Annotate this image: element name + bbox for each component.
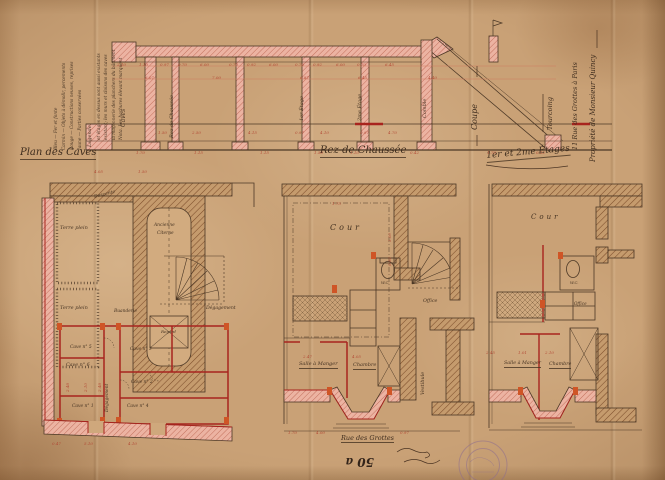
chambre-etages: Chambre	[549, 363, 571, 369]
dim: 6.07	[145, 76, 154, 80]
office-rdc: Office	[423, 300, 437, 305]
dim: 1.70	[487, 151, 496, 155]
address-line: 11 Rue des Grottes à Paris	[572, 62, 579, 150]
dim: 6.87	[300, 76, 309, 80]
level-2me: 2me Étage	[358, 94, 363, 121]
dim: 0.12	[536, 151, 545, 155]
dim: 7.00	[212, 76, 221, 80]
dim: 2.10	[117, 63, 126, 67]
cave-3: Cave n° 3	[130, 348, 152, 352]
terre-plein-1: Terre plein	[60, 226, 88, 231]
dim: 0.97	[295, 131, 304, 135]
level-comble: Comble	[423, 99, 428, 118]
dim: 4.05	[352, 355, 361, 359]
nota-line-4: et étages en dessus sont aussi existants	[98, 53, 102, 140]
office-etages: Office	[574, 302, 587, 306]
rue-label: Rue des Grottes	[341, 435, 394, 443]
dim: 0.92	[388, 257, 392, 266]
descente-label: Descente	[94, 191, 116, 201]
legende-rouge: Rouge — Constructions neuves, reprises	[71, 62, 75, 150]
dim: 0.70	[357, 63, 366, 67]
legende-heading: Légende:	[88, 123, 93, 147]
dim: 2.48	[98, 383, 102, 392]
dim: 0.70	[229, 63, 238, 67]
dim: 2.10	[84, 383, 88, 392]
dim: 1.15	[194, 151, 203, 155]
dim: 0.42	[410, 151, 419, 155]
dim: 0.92	[247, 63, 256, 67]
city-line: Tourcoing	[547, 97, 554, 130]
dim: 4.70	[388, 131, 397, 135]
dim: 3.00	[388, 233, 392, 242]
dim: 4.00	[316, 431, 325, 435]
nota-line-1: Nota. Les hachures élevant marquent	[120, 58, 124, 140]
legende-bleu: Bleu — Fer et fonte	[55, 108, 59, 150]
dim: 0.97	[160, 63, 169, 67]
degagement-stair-label: Dégagement	[206, 307, 236, 312]
archive-number: 50 a	[345, 456, 374, 468]
legende-jaune: Jaune — Parties conservées	[79, 90, 83, 150]
dim: 2.45	[486, 351, 495, 355]
wc-rdc: W.C.	[381, 281, 389, 285]
dim: 6.45	[358, 76, 367, 80]
etages-title: 1er et 2me Étages	[486, 145, 570, 163]
dim: 1.50	[158, 131, 167, 135]
owner-line: Propriété de Monsieur Quincy	[590, 55, 597, 162]
coupe-title: Coupe	[471, 104, 479, 130]
wc-etages: W.C.	[570, 281, 578, 285]
regard-label: Regard	[161, 330, 176, 334]
dim: 1.70	[288, 431, 297, 435]
dim: 2.47	[303, 355, 312, 359]
terre-plein-2: Terre plein	[60, 306, 88, 311]
level-1er: 1er Étage	[300, 96, 305, 121]
dim: 6.45	[385, 63, 394, 67]
dim: 0.70	[295, 63, 304, 67]
chambre-rdc: Chambre	[353, 363, 376, 370]
labels-layer: Plan des CavesRez-de-Chaussée1er et 2me …	[0, 0, 665, 480]
dim: 1.10	[350, 151, 359, 155]
ancienne-label: Ancienne	[154, 224, 175, 228]
dim: 0.92	[313, 63, 322, 67]
dim: 6.00	[269, 63, 278, 67]
dim: 2.50	[192, 131, 201, 135]
cave-1: Cave n° 1	[72, 405, 94, 409]
cave-2: Cave n° 2	[131, 381, 153, 385]
cour-etages: Cour	[531, 214, 560, 221]
cave-4: Cave n° 4	[127, 405, 149, 409]
dim: 0.97	[360, 131, 369, 135]
dim: 6.00	[200, 63, 209, 67]
rdc-title: Rez-de-Chaussée	[320, 146, 406, 158]
legende-carmin: Carmin — Objets à démolir, percements	[63, 63, 67, 150]
dim: 0.47	[52, 442, 61, 446]
dim: 4.40	[428, 76, 437, 80]
dim: 6.00	[336, 63, 345, 67]
dim: 1.50	[138, 170, 147, 174]
dim: 1.10	[139, 63, 148, 67]
dim: 1.50	[314, 151, 323, 155]
buanderie-label: Buanderie	[114, 310, 137, 314]
citerne-label: Citerne	[157, 232, 174, 236]
dim: 0.70	[178, 63, 187, 67]
dim: 0.97	[400, 431, 409, 435]
scanned-plan-sheet: { "colors": { "paper": "#c9a176", "ink":…	[0, 0, 665, 480]
vestibule-label: Vestibule	[421, 372, 426, 395]
dim: 2.10	[545, 351, 554, 355]
dim: 1.70	[136, 151, 145, 155]
dim: 4.15	[248, 131, 257, 135]
salle-a-manger-rdc: Salle à Manger	[299, 362, 338, 369]
dim: 5.10	[84, 442, 93, 446]
degagement-corridor-label: Dégagement	[106, 384, 110, 412]
dim: 1.01	[518, 351, 527, 355]
cour-rdc: Cour	[330, 224, 362, 232]
dim: 4.10	[128, 442, 137, 446]
nota-line-3: existant; les murs et cloisons des caves	[105, 54, 109, 140]
dim: 4.05	[94, 170, 103, 174]
dim: 2.48	[66, 383, 70, 392]
salle-a-manger-etages: Salle à Manger	[504, 362, 541, 368]
dim: 1.75	[332, 202, 341, 206]
cave-6: Cave n° 6	[66, 364, 90, 369]
level-rdc: Rez de Chaussée	[170, 95, 175, 138]
dim: 1.15	[260, 151, 269, 155]
dim: 4.10	[320, 131, 329, 135]
cave-5: Cave n° 5	[70, 346, 92, 350]
